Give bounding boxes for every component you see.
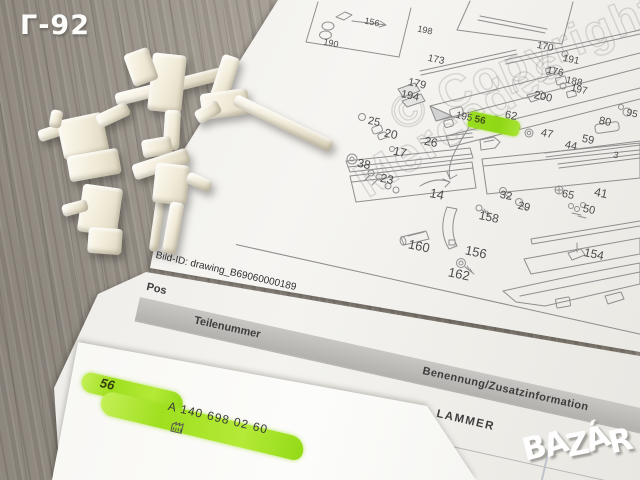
plastic-clip xyxy=(128,150,223,260)
photo-scene: © Copyright 20 Mercedes xyxy=(0,0,640,480)
floor-marking-label: Г-92 xyxy=(20,10,90,41)
